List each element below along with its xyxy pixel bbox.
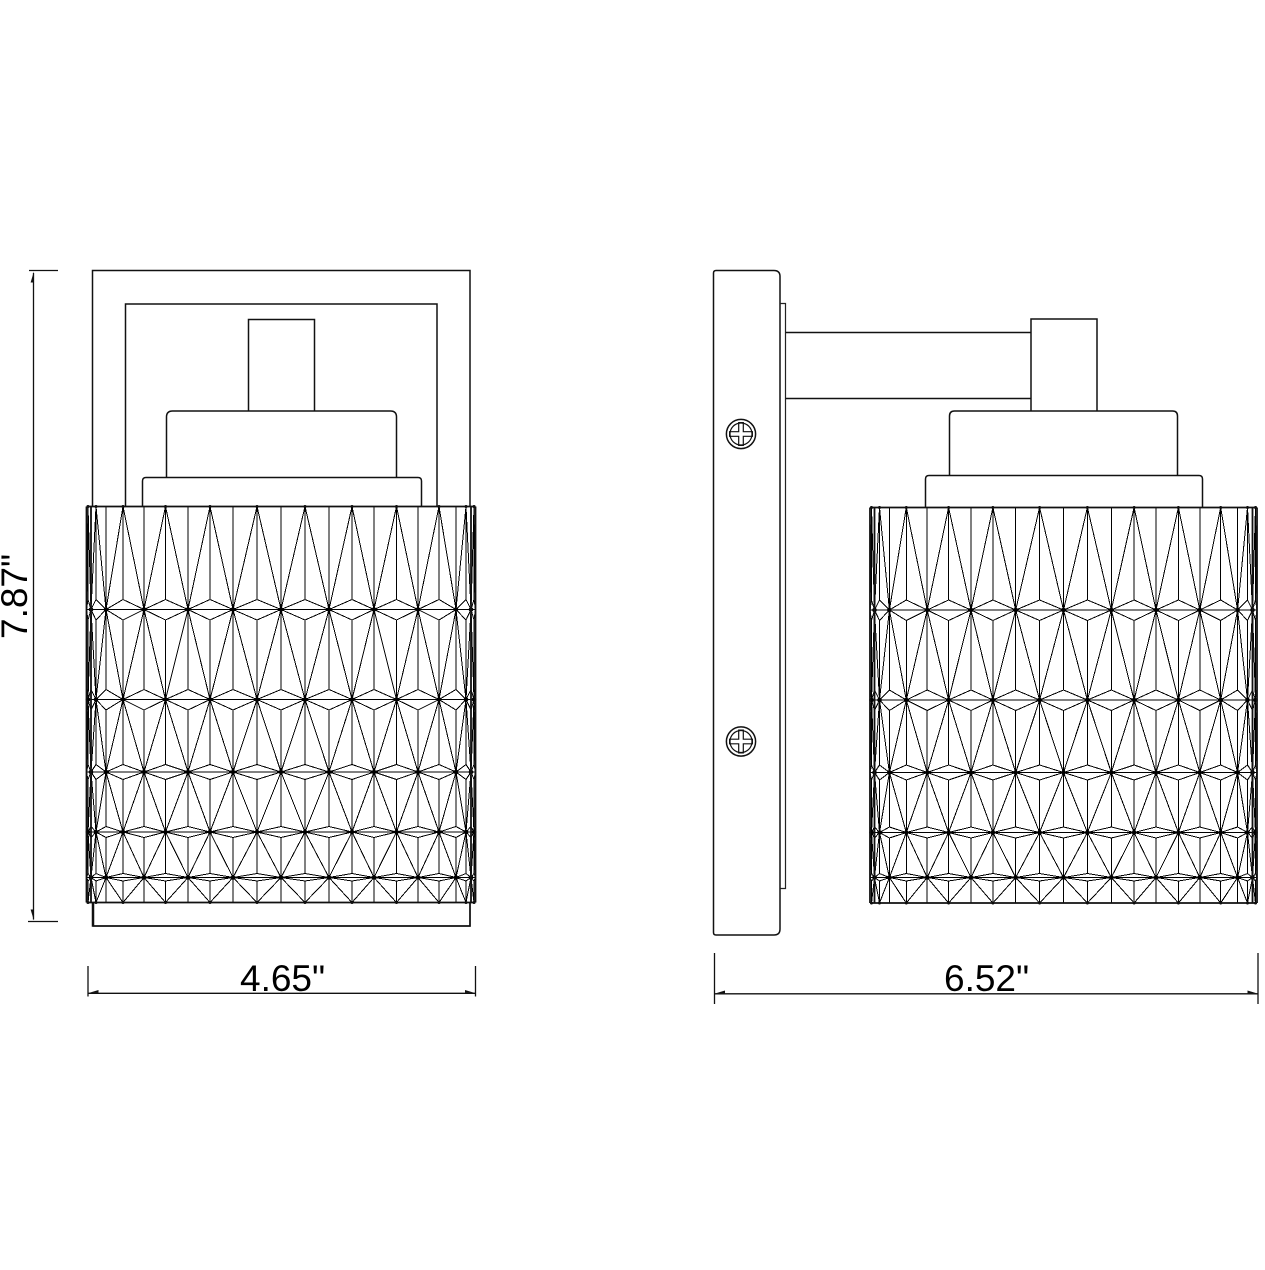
svg-text:7.87": 7.87" bbox=[0, 554, 35, 639]
svg-text:6.52": 6.52" bbox=[944, 958, 1029, 999]
svg-text:4.65": 4.65" bbox=[240, 958, 325, 999]
